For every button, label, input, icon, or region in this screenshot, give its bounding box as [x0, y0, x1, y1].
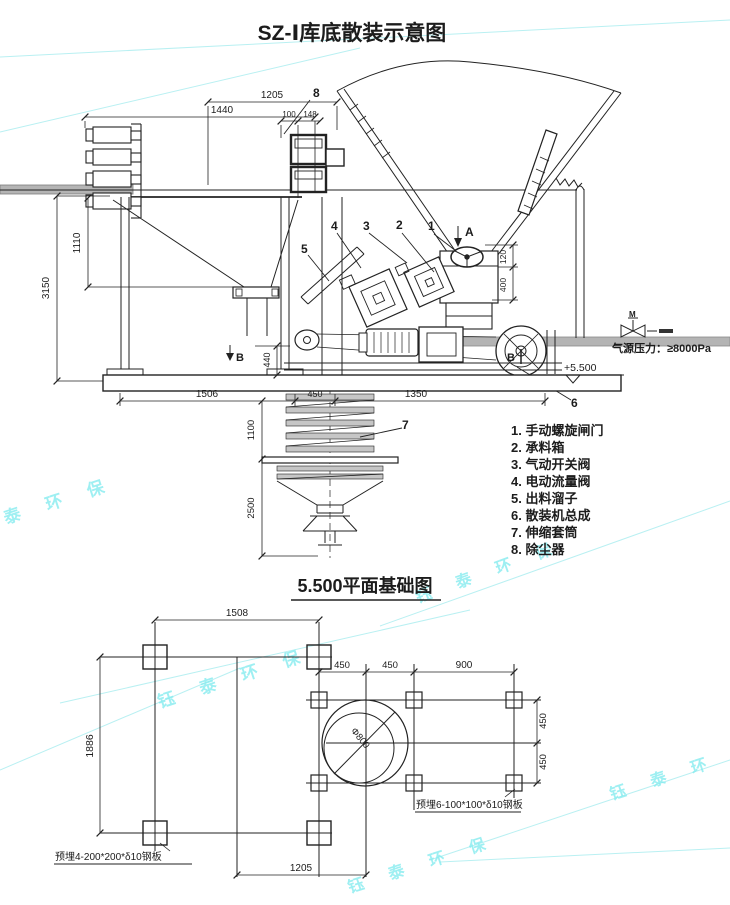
receiving-hopper [113, 200, 298, 336]
watermark-text: 钰 泰 环 保 [155, 644, 313, 712]
watermark-text: 泰 环 保 [1, 473, 117, 528]
dim-1205: 1205 [261, 90, 284, 101]
drawing-canvas: 泰 环 保 钰 泰 环 保 钰 泰 环 保 钰 泰 环 保 钰 泰 环 保 SZ… [0, 0, 730, 905]
legend-item: 3. 气动开关阀 [511, 457, 590, 472]
watermark-text: 钰 泰 环 保 [607, 738, 730, 804]
foundation-title: 5.500平面基础图 [297, 575, 432, 596]
level-label: +5.500 [564, 362, 597, 374]
note-plate6: 预埋6-100*100*δ10钢板 [416, 798, 523, 811]
dim-900: 900 [456, 660, 473, 671]
legend-item: 7. 伸缩套筒 [511, 525, 577, 540]
dim-3150: 3150 [41, 276, 52, 299]
section-a-label: A [465, 225, 474, 239]
dim-440: 440 [262, 352, 272, 367]
legend-item: 6. 散装机总成 [511, 508, 590, 523]
callout-8: 8 [313, 86, 320, 100]
dim-1508: 1508 [226, 608, 249, 619]
callout-2: 2 [396, 218, 403, 232]
telescopic-spout [262, 391, 402, 558]
callout-6: 6 [571, 396, 578, 410]
legend: 1. 手动螺旋闸门 2. 承料箱 3. 气动开关阀 4. 电动流量阀 5. 出料… [511, 423, 603, 557]
section-b-right-label: B [507, 352, 515, 364]
dim-1110: 1110 [72, 232, 83, 253]
legend-item: 8. 除尘器 [511, 542, 565, 557]
legend-item: 4. 电动流量阀 [511, 474, 590, 489]
legend-item: 1. 手动螺旋闸门 [511, 423, 603, 438]
callout-7: 7 [402, 418, 409, 432]
dim-450: 450 [307, 389, 322, 399]
section-b-left-label: B [236, 352, 244, 364]
right-post [576, 186, 584, 338]
callout-5: 5 [301, 242, 308, 256]
pressure-note: 气源压力：≥8000Pa [611, 341, 712, 355]
dim-1350: 1350 [405, 389, 428, 400]
dim-1100: 1100 [246, 420, 257, 440]
callout-4: 4 [331, 219, 338, 233]
air-cannon-cluster [86, 124, 141, 218]
schematic-title: SZ-Ⅰ库底散装示意图 [258, 21, 447, 45]
dim-450c: 450 [538, 713, 549, 729]
dim-120: 120 [498, 250, 508, 264]
dim-400: 400 [498, 278, 508, 292]
dim-1886: 1886 [84, 734, 96, 758]
watermark-text: 钰 泰 环 保 [345, 831, 498, 897]
dim-450d: 450 [538, 754, 549, 770]
legend-item: 5. 出料溜子 [511, 491, 577, 506]
dim-1440: 1440 [211, 105, 234, 116]
spring [556, 178, 582, 187]
dim-148: 148 [303, 110, 317, 119]
note-plate4: 预埋4-200*200*δ10钢板 [55, 850, 162, 863]
dim-450b: 450 [382, 660, 398, 671]
dim-2500: 2500 [246, 497, 257, 518]
air-supply: M 气源压力：≥8000Pa [611, 310, 712, 355]
dim-1205-plan: 1205 [290, 863, 313, 874]
dim-1506: 1506 [196, 389, 219, 400]
dim-450a: 450 [334, 660, 350, 671]
foundation-plan: 5.500平面基础图 [54, 575, 549, 878]
legend-item: 2. 承料箱 [511, 440, 564, 455]
callout-1: 1 [428, 219, 435, 233]
dim-100: 100 [282, 110, 296, 119]
motor-valve-label: M [629, 310, 636, 319]
base-plate [103, 375, 621, 391]
callout-3: 3 [363, 219, 370, 233]
